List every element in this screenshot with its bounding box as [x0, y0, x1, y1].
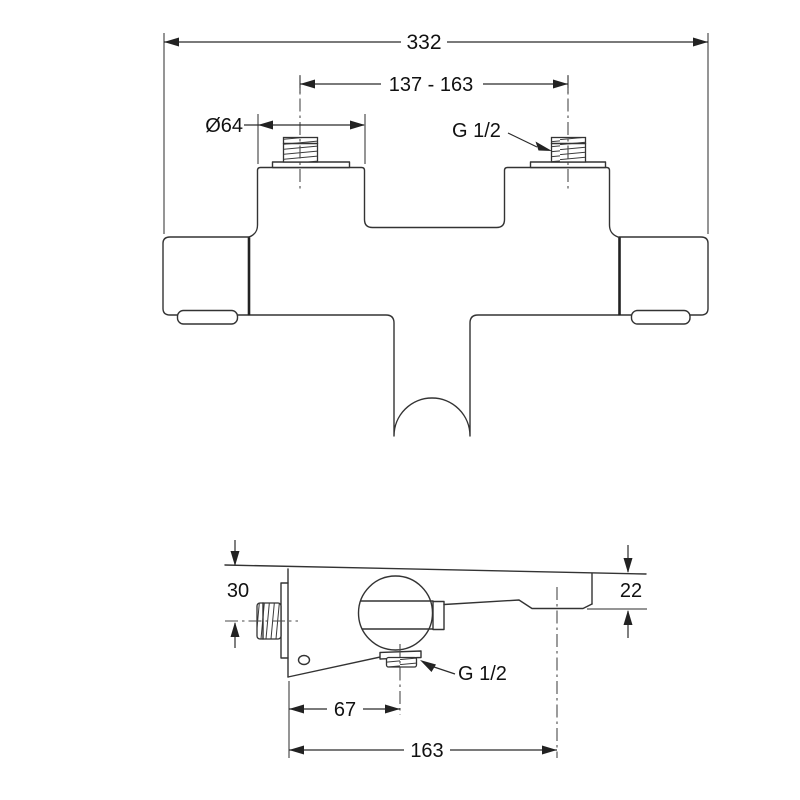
arrowhead-left: [289, 746, 304, 755]
right-handle-grip-tab: [632, 311, 691, 325]
arrowhead-down: [624, 558, 633, 573]
bottom-outlet-thread: [387, 658, 417, 668]
dim-tip-label: 22: [620, 580, 642, 602]
cartridge-circle: [359, 576, 433, 650]
thread-size-label: G 1/2: [458, 663, 507, 685]
spout-underside: [444, 600, 592, 609]
front-body-lower-outline-spout: [249, 315, 619, 436]
dim-tip-22: 22: [587, 545, 647, 638]
side-view: 30 22 G 1/2 67: [225, 540, 647, 762]
dim-connection-spacing-label: 137 - 163: [389, 74, 474, 96]
dim-total-width: 332: [164, 31, 708, 234]
arrowhead-up: [231, 622, 240, 637]
label-thread-front: G 1/2: [452, 120, 552, 151]
left-escutcheon-flange: [273, 162, 350, 168]
dim-escutcheon-diameter-label: Ø64: [205, 115, 243, 137]
left-handle-outline: [163, 237, 249, 315]
dim-total-width-label: 332: [406, 31, 441, 54]
dim-depth-30: 30: [227, 540, 249, 648]
mounting-hole: [299, 656, 310, 665]
arrowhead-left: [300, 80, 315, 89]
leader-line: [508, 133, 537, 147]
arrowhead-left: [289, 705, 304, 714]
arrowhead-right: [542, 746, 557, 755]
dim-reach-163: 163: [289, 740, 557, 762]
arrowhead-right: [350, 121, 365, 130]
arrowhead: [536, 142, 553, 152]
dim-outlet-67: 67: [289, 681, 400, 758]
technical-drawing-page: 332 137 - 163 Ø64 G 1/2: [0, 0, 800, 800]
leader-line: [431, 666, 455, 674]
arrowhead-right: [385, 705, 400, 714]
right-handle-outline: [619, 237, 708, 315]
arrowhead: [420, 660, 436, 672]
technical-drawing-canvas: 332 137 - 163 Ø64 G 1/2: [0, 0, 800, 800]
front-view: 332 137 - 163 Ø64 G 1/2: [163, 31, 708, 436]
arrowhead-down: [231, 551, 240, 566]
label-thread-side: G 1/2: [420, 660, 507, 685]
dim-reach-label: 163: [410, 740, 443, 762]
arrowhead-right: [693, 38, 708, 47]
arrowhead-left: [258, 121, 273, 130]
arrowhead-up: [624, 610, 633, 625]
arrowhead-left: [164, 38, 179, 47]
dim-outlet-label: 67: [334, 699, 356, 721]
spout-cap: [433, 602, 444, 630]
arrowhead-right: [553, 80, 568, 89]
dim-connection-spacing: 137 - 163: [300, 74, 568, 96]
front-body-upper-outline: [249, 168, 618, 238]
dim-depth-label: 30: [227, 580, 249, 602]
left-handle-grip-tab: [178, 311, 238, 325]
thread-size-label: G 1/2: [452, 120, 501, 142]
